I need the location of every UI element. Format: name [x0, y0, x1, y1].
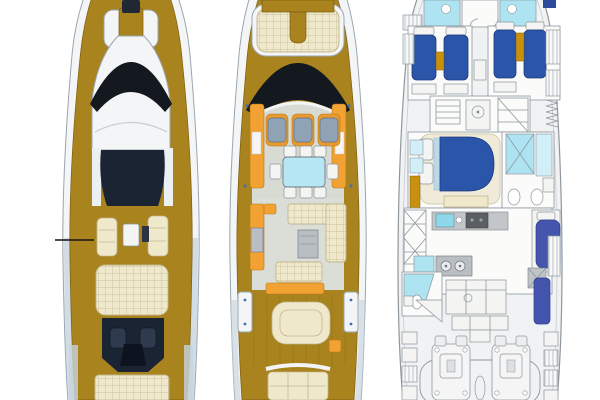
stern-hull-starboard	[184, 345, 193, 400]
anchor-windlass	[122, 0, 140, 13]
sink-counter	[543, 178, 554, 192]
starboard-engine	[492, 336, 530, 400]
flybridge-rail-port	[92, 148, 101, 206]
master-ensuite	[502, 132, 554, 208]
dining-chair	[314, 146, 326, 157]
mess-bench	[452, 316, 508, 330]
galley-appliance	[251, 228, 263, 252]
flybridge-sunpad	[96, 265, 168, 315]
pillow	[526, 22, 544, 30]
lower-deck-plan	[398, 0, 562, 400]
yacht-deck-plans-figure	[0, 0, 600, 400]
exterior-top-view	[55, 0, 199, 400]
bath-floor	[536, 134, 552, 176]
starboard-systems-lockers	[544, 332, 558, 400]
dresser	[546, 70, 560, 96]
port-systems-lockers	[402, 332, 417, 400]
galley-sink	[436, 214, 454, 227]
genset	[470, 330, 490, 342]
flybridge-gadget	[142, 226, 149, 242]
dining-chair	[300, 187, 312, 198]
crew-pillow	[537, 212, 555, 220]
galley-sink-unit	[414, 256, 434, 272]
dining-chair	[284, 187, 296, 198]
aft-bulkhead-cabinet	[266, 283, 324, 294]
pillow	[414, 27, 434, 35]
flybridge-rail-starboard	[164, 148, 173, 206]
twin-bed	[494, 30, 516, 78]
corridor-unit	[474, 60, 486, 80]
pillow	[496, 22, 514, 30]
headboard	[434, 138, 440, 190]
flybridge-table	[123, 224, 139, 246]
wardrobe	[403, 34, 414, 64]
dining-chair	[270, 164, 281, 179]
stern-hull-port	[69, 345, 78, 400]
main-deck-plan	[230, 0, 366, 400]
sofa-aft	[276, 262, 322, 282]
vanity-seat	[410, 158, 423, 173]
stove	[466, 213, 488, 228]
dining-chair	[284, 146, 296, 157]
dining-chair	[300, 146, 312, 157]
bow-teak-band	[262, 0, 334, 12]
foot-bench	[412, 84, 436, 94]
nightstand	[436, 52, 444, 70]
flybridge-windscreen-opening	[100, 150, 165, 206]
helm-seats	[266, 114, 340, 146]
deck-plans-canvas	[0, 0, 600, 400]
head-sink	[404, 296, 413, 306]
toilet	[508, 189, 520, 205]
dining-table	[283, 157, 325, 187]
dining-chair	[327, 164, 338, 179]
nightstand	[516, 33, 524, 61]
sofa-l-side	[326, 204, 346, 262]
foot-bench	[494, 82, 516, 92]
guest-cabin-port	[403, 26, 472, 100]
side-console-panel-port	[252, 132, 261, 154]
wardrobe	[546, 30, 560, 64]
nav-light-box	[543, 0, 556, 8]
twin-bed	[444, 35, 468, 80]
crew-berth	[534, 278, 550, 324]
double-bed	[440, 137, 494, 191]
foot-bench	[444, 196, 488, 207]
walkway-teak	[410, 176, 420, 210]
guest-cabin-starboard	[488, 22, 560, 100]
faucet	[456, 217, 462, 223]
twin-bed	[412, 35, 436, 80]
landing-pedestal	[466, 100, 490, 130]
cockpit-orange-unit	[329, 340, 341, 352]
bow-seating-area	[252, 0, 344, 56]
port-engine	[432, 336, 470, 400]
pillow	[446, 27, 466, 35]
bow-teak-walkway	[290, 12, 306, 43]
aft-sunpad	[95, 375, 169, 400]
bidet	[531, 189, 543, 205]
foot-bench	[444, 84, 468, 94]
flybridge-helm-console	[102, 318, 164, 372]
vanity-seat	[410, 140, 423, 155]
twin-bed	[524, 30, 546, 78]
dining-chair	[314, 187, 326, 198]
crew-lockers	[548, 236, 560, 276]
